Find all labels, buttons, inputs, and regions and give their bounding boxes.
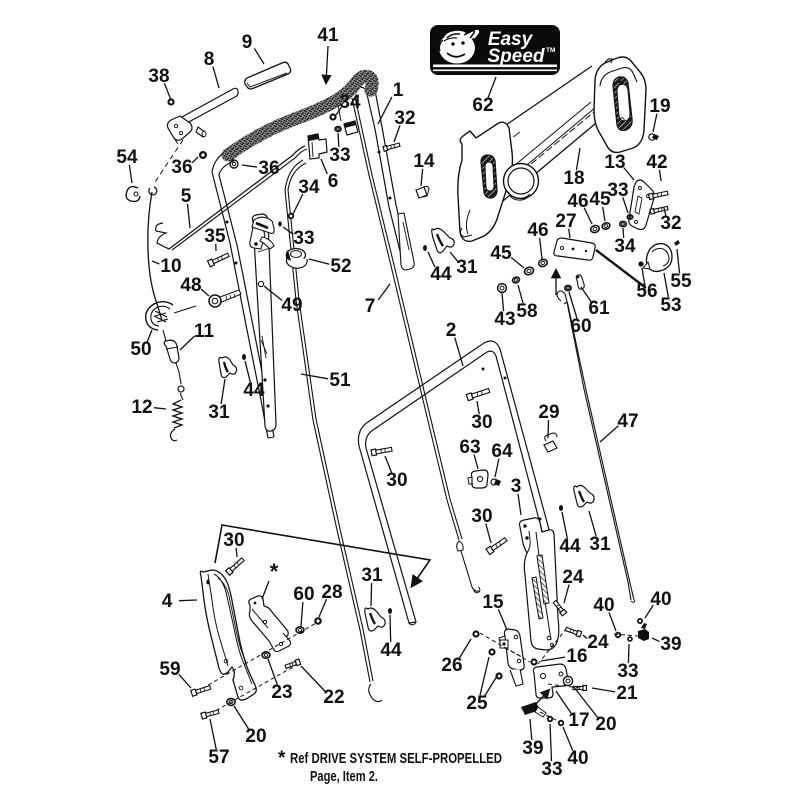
svg-text:31: 31 [208, 402, 230, 423]
svg-text:28: 28 [321, 582, 342, 603]
svg-text:44: 44 [559, 536, 581, 557]
svg-text:31: 31 [589, 534, 611, 555]
svg-text:24: 24 [587, 632, 609, 653]
svg-text:22: 22 [323, 687, 344, 708]
svg-text:62: 62 [472, 95, 493, 116]
svg-text:43: 43 [494, 309, 515, 330]
svg-text:53: 53 [660, 295, 681, 316]
svg-text:44: 44 [380, 640, 402, 661]
svg-text:33: 33 [293, 228, 314, 249]
svg-text:15: 15 [482, 592, 504, 613]
svg-text:60: 60 [570, 316, 591, 337]
svg-text:21: 21 [616, 683, 638, 704]
svg-text:16: 16 [566, 646, 587, 667]
svg-text:33: 33 [329, 145, 350, 166]
svg-text:11: 11 [194, 321, 215, 342]
svg-text:59: 59 [159, 659, 180, 680]
svg-text:63: 63 [459, 437, 480, 458]
svg-text:30: 30 [471, 506, 492, 527]
svg-text:20: 20 [595, 714, 616, 735]
svg-text:6: 6 [328, 171, 339, 192]
svg-text:TM: TM [546, 47, 555, 54]
svg-text:10: 10 [160, 256, 181, 277]
svg-text:36: 36 [171, 157, 192, 178]
svg-text:33: 33 [617, 661, 638, 682]
svg-text:32: 32 [660, 213, 681, 234]
svg-text:*: * [270, 559, 279, 584]
svg-text:54: 54 [116, 147, 138, 168]
svg-text:29: 29 [538, 402, 559, 423]
svg-text:30: 30 [386, 470, 407, 491]
svg-text:31: 31 [361, 565, 383, 586]
svg-text:64: 64 [491, 441, 513, 462]
svg-text:48: 48 [180, 275, 201, 296]
svg-text:19: 19 [649, 96, 670, 117]
svg-text:44: 44 [243, 380, 265, 401]
svg-text:Speed: Speed [487, 46, 544, 67]
svg-text:52: 52 [330, 256, 351, 277]
svg-text:Page, Item 2.: Page, Item 2. [310, 769, 378, 785]
svg-text:33: 33 [607, 180, 628, 201]
svg-text:46: 46 [527, 220, 548, 241]
svg-text:55: 55 [670, 271, 692, 292]
svg-text:*: * [278, 748, 286, 769]
svg-text:57: 57 [208, 747, 229, 768]
svg-text:34: 34 [614, 236, 636, 257]
svg-text:34: 34 [298, 177, 320, 198]
svg-text:40: 40 [650, 589, 671, 610]
svg-text:41: 41 [317, 25, 339, 46]
svg-text:3: 3 [511, 476, 522, 497]
svg-text:36: 36 [258, 158, 279, 179]
svg-text:39: 39 [660, 634, 681, 655]
svg-text:4: 4 [162, 591, 173, 612]
svg-text:33: 33 [541, 759, 562, 780]
svg-text:60: 60 [293, 584, 314, 605]
svg-text:13: 13 [604, 152, 625, 173]
svg-text:27: 27 [555, 211, 576, 232]
svg-text:51: 51 [329, 370, 351, 391]
svg-text:7: 7 [365, 296, 376, 317]
svg-text:50: 50 [130, 339, 151, 360]
svg-text:47: 47 [617, 411, 638, 432]
svg-text:12: 12 [131, 397, 152, 418]
svg-text:32: 32 [394, 108, 415, 129]
svg-text:58: 58 [516, 301, 537, 322]
svg-text:40: 40 [567, 748, 588, 769]
svg-text:5: 5 [181, 186, 192, 207]
svg-text:23: 23 [271, 682, 292, 703]
svg-text:34: 34 [339, 92, 361, 113]
svg-text:24: 24 [562, 567, 584, 588]
svg-text:39: 39 [522, 738, 543, 759]
svg-text:30: 30 [223, 530, 244, 551]
svg-text:31: 31 [456, 257, 478, 278]
svg-text:44: 44 [430, 264, 452, 285]
svg-text:14: 14 [413, 151, 435, 172]
svg-text:45: 45 [490, 243, 512, 264]
svg-text:40: 40 [593, 595, 614, 616]
svg-text:49: 49 [281, 295, 302, 316]
svg-text:38: 38 [148, 66, 169, 87]
svg-text:42: 42 [646, 152, 667, 173]
svg-text:35: 35 [204, 226, 226, 247]
svg-text:Ref DRIVE SYSTEM SELF-PROPELLE: Ref DRIVE SYSTEM SELF-PROPELLED [290, 751, 502, 767]
svg-text:30: 30 [471, 412, 492, 433]
svg-text:56: 56 [636, 281, 657, 302]
svg-text:9: 9 [242, 32, 253, 53]
svg-text:18: 18 [563, 168, 584, 189]
svg-text:1: 1 [393, 80, 404, 101]
svg-text:61: 61 [588, 298, 610, 319]
